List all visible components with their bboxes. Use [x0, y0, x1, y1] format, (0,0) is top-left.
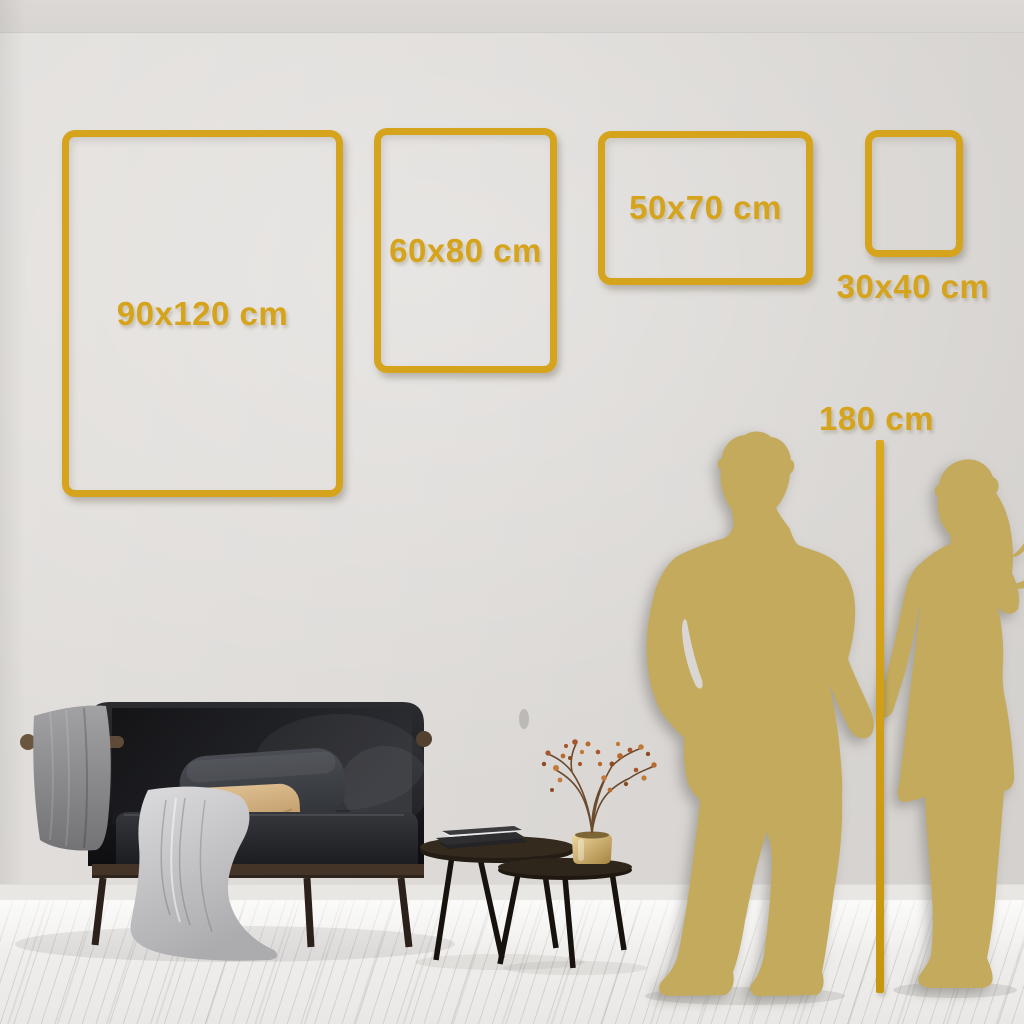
- couple-silhouettes: [0, 0, 1024, 1024]
- height-reference-line: [876, 440, 884, 993]
- woman-hair-wisp: [1012, 543, 1024, 557]
- height-label-wrap: 180 cm: [789, 400, 964, 438]
- size-guide-poster: 90x120 cm 60x80 cm 50x70 cm 30x40 cm 180…: [0, 0, 1024, 1024]
- height-label: 180 cm: [819, 400, 934, 437]
- man-silhouette: [647, 431, 874, 996]
- woman-silhouette: [879, 459, 1019, 988]
